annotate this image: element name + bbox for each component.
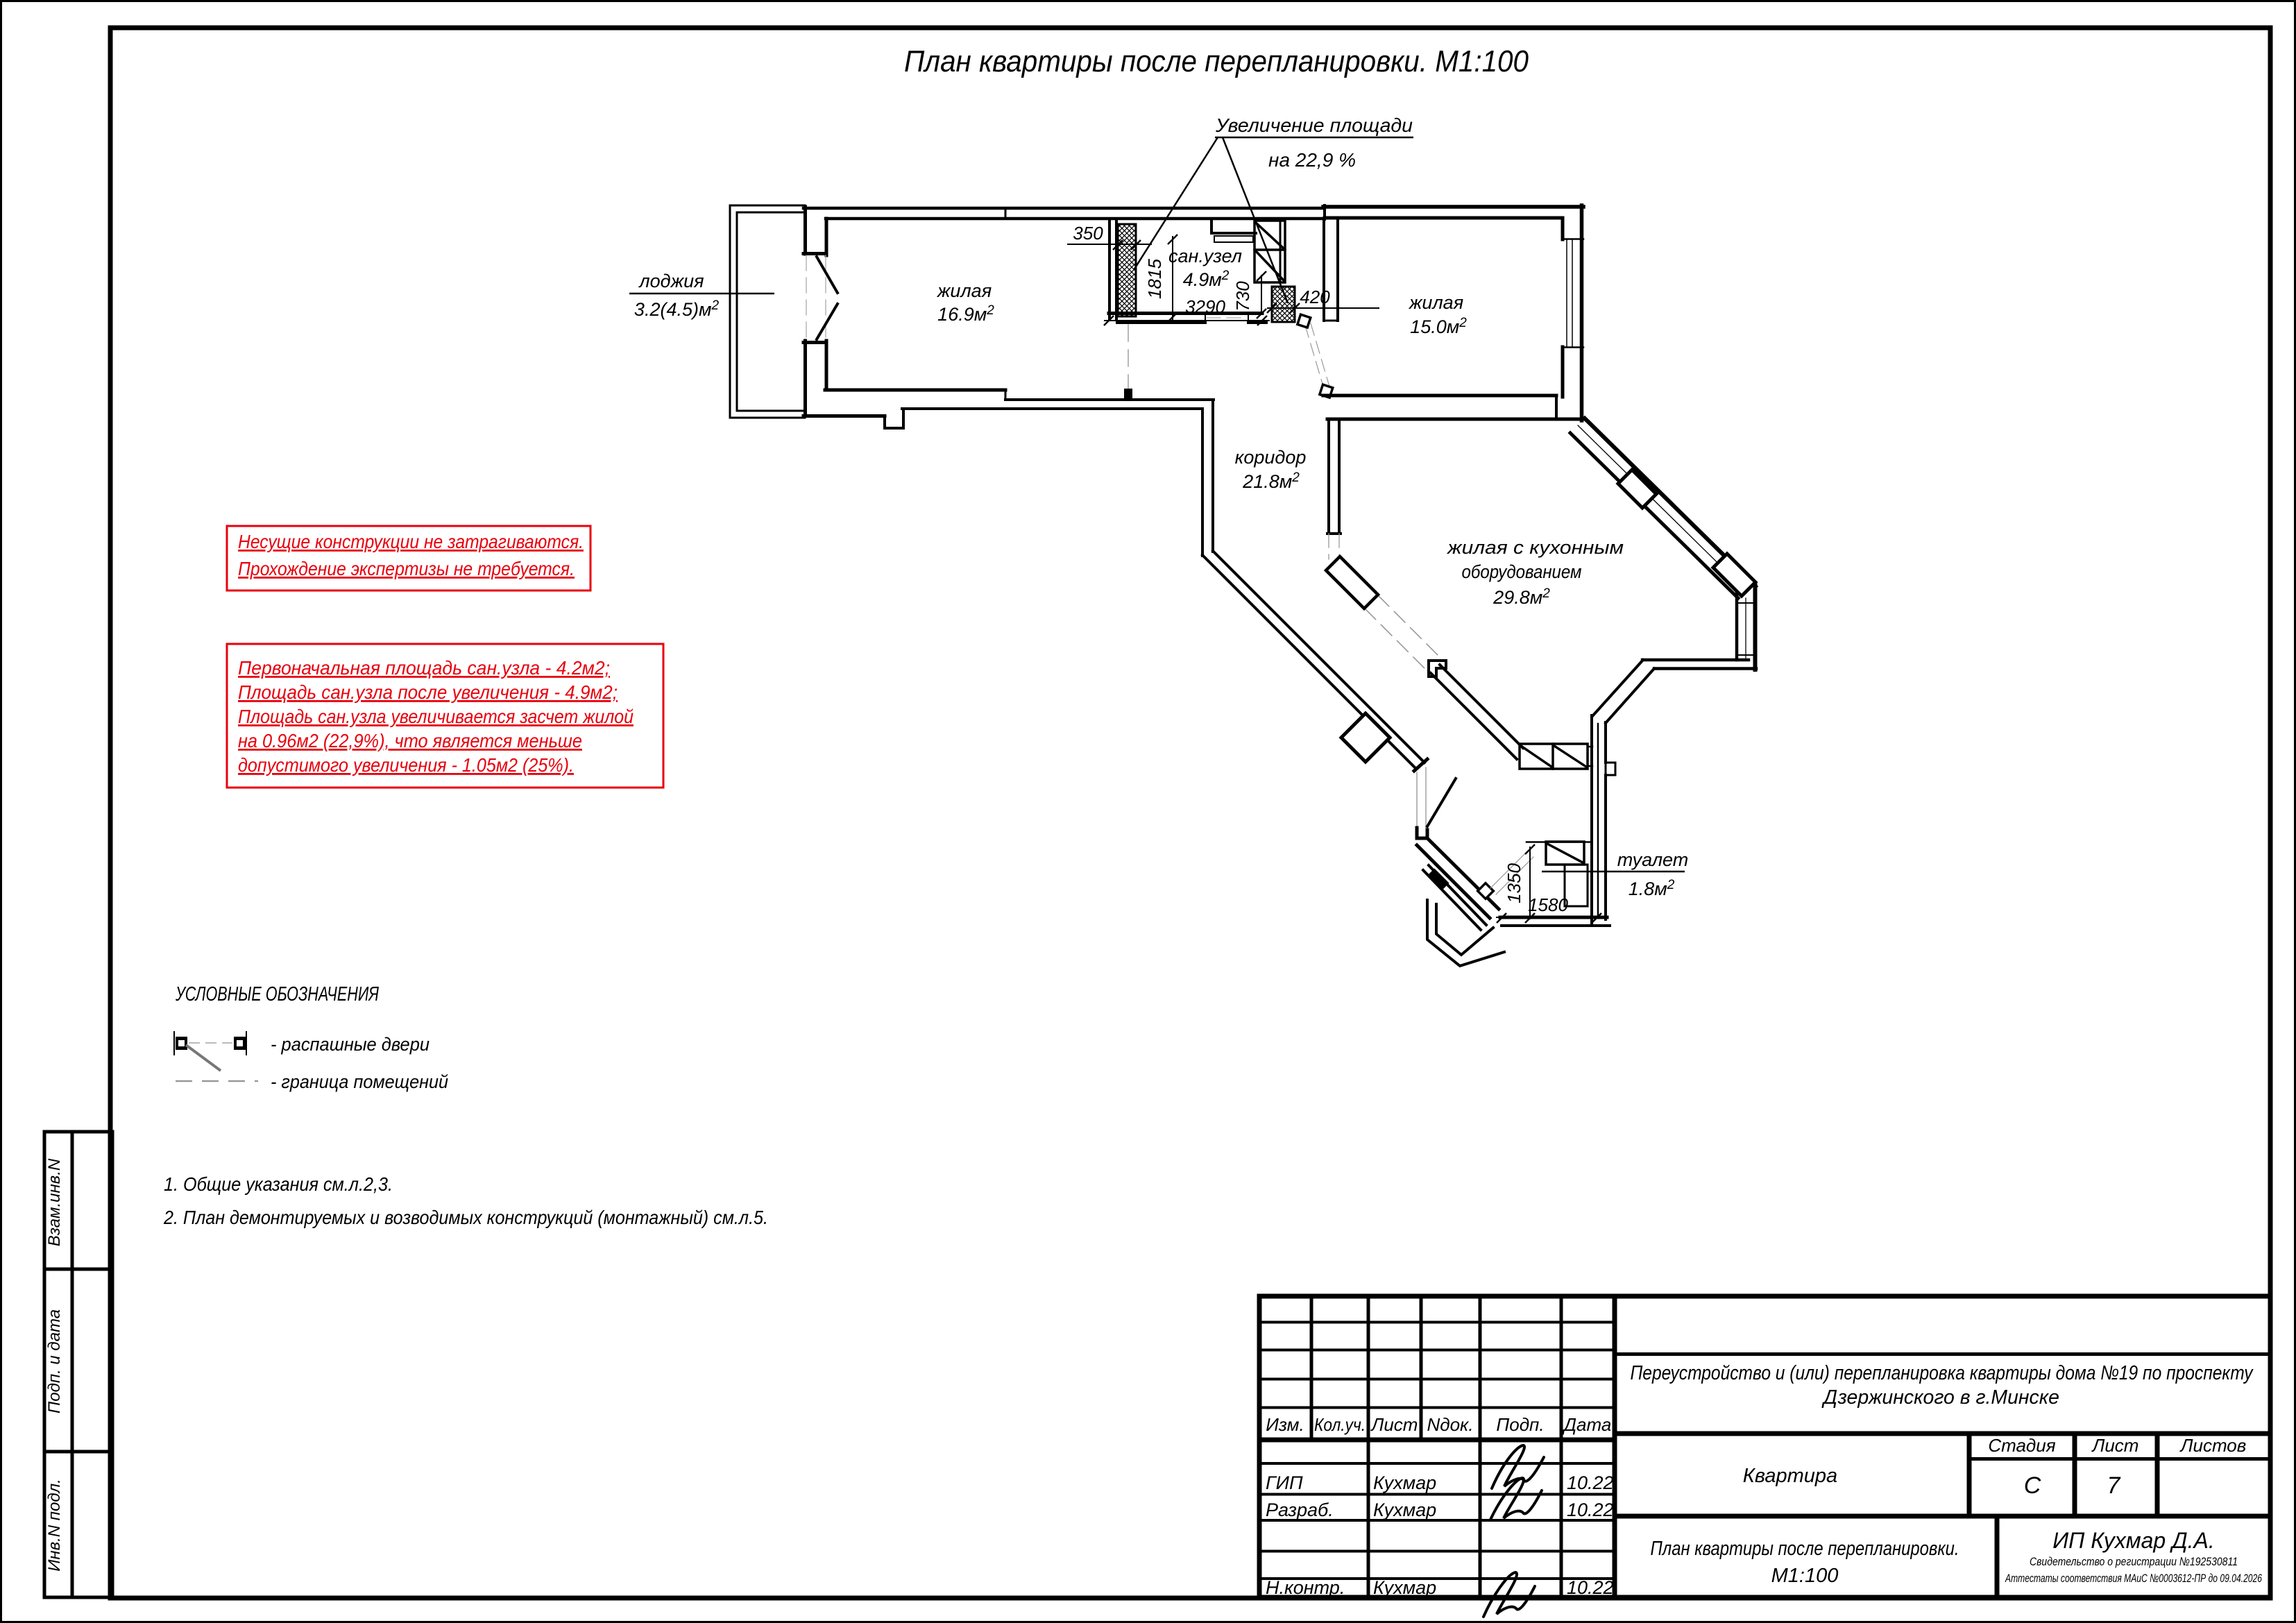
- svg-text:Лист: Лист: [1370, 1414, 1418, 1435]
- svg-text:допустимого увеличения - 1.05м: допустимого увеличения - 1.05м2 (25%).: [238, 754, 574, 776]
- svg-text:Кухмар: Кухмар: [1373, 1577, 1436, 1598]
- svg-text:10.22: 10.22: [1567, 1499, 1614, 1520]
- svg-text:сан.узел: сан.узел: [1168, 246, 1242, 266]
- svg-text:Подп. и дата: Подп. и дата: [45, 1309, 64, 1413]
- svg-text:Кухмар: Кухмар: [1373, 1499, 1436, 1520]
- svg-text:730: 730: [1232, 281, 1253, 312]
- svg-text:УСЛОВНЫЕ ОБОЗНАЧЕНИЯ: УСЛОВНЫЕ ОБОЗНАЧЕНИЯ: [175, 983, 379, 1005]
- svg-text:350: 350: [1073, 223, 1103, 244]
- svg-text:М1:100: М1:100: [1771, 1565, 1839, 1587]
- svg-text:жилая: жилая: [1409, 292, 1463, 313]
- svg-text:С: С: [2024, 1472, 2041, 1499]
- svg-text:туалет: туалет: [1617, 849, 1689, 870]
- svg-text:Площадь сан.узла после увеличе: Площадь сан.узла после увеличения - 4.9м…: [238, 681, 618, 703]
- svg-text:Первоначальная площадь сан.узл: Первоначальная площадь сан.узла - 4.2м2;: [238, 657, 610, 679]
- svg-text:3.2(4.5)м2: 3.2(4.5)м2: [634, 298, 720, 320]
- svg-text:420: 420: [1300, 287, 1330, 307]
- svg-text:Кухмар: Кухмар: [1373, 1472, 1436, 1493]
- svg-text:жилая: жилая: [937, 280, 992, 301]
- svg-text:Площадь сан.узла увеличивается: Площадь сан.узла увеличивается засчет жи…: [238, 706, 633, 727]
- svg-text:Изм.: Изм.: [1266, 1414, 1304, 1435]
- svg-text:- распашные двери: - распашные двери: [271, 1034, 430, 1055]
- svg-text:Дзержинского в г.Минске: Дзержинского в г.Минске: [1821, 1386, 2059, 1409]
- svg-text:Разраб.: Разраб.: [1266, 1499, 1334, 1520]
- svg-text:Увеличение площади: Увеличение площади: [1215, 114, 1413, 136]
- svg-text:15.0м2: 15.0м2: [1410, 316, 1467, 337]
- svg-text:Аттестаты соответствия МАиС №: Аттестаты соответствия МАиС №0003612-ПР …: [2005, 1572, 2262, 1585]
- svg-text:Листов: Листов: [2179, 1435, 2247, 1456]
- svg-text:1580: 1580: [1528, 894, 1568, 915]
- svg-text:3290: 3290: [1185, 296, 1225, 317]
- svg-text:1350: 1350: [1504, 863, 1524, 903]
- svg-text:коридор: коридор: [1235, 447, 1307, 468]
- svg-text:- граница помещений: - граница помещений: [271, 1071, 448, 1092]
- svg-text:Переустройство и (или) перепла: Переустройство и (или) перепланировка кв…: [1631, 1362, 2254, 1384]
- svg-text:Прохождение экспертизы не треб: Прохождение экспертизы не требуется.: [238, 558, 575, 579]
- svg-text:Свидетельство о регистрации №1: Свидетельство о регистрации №192530811: [2030, 1555, 2238, 1568]
- svg-text:План квартиры после перепланир: План квартиры после перепланировки. М1:1…: [904, 44, 1529, 78]
- svg-text:Инв.N подл.: Инв.N подл.: [45, 1479, 64, 1572]
- svg-text:оборудованием: оборудованием: [1462, 561, 1582, 582]
- svg-text:16.9м2: 16.9м2: [937, 303, 994, 325]
- svg-text:на 0.96м2 (22,9%), что являетс: на 0.96м2 (22,9%), что является меньше: [238, 730, 582, 751]
- svg-text:21.8м2: 21.8м2: [1242, 470, 1300, 492]
- svg-text:Nдок.: Nдок.: [1427, 1414, 1473, 1435]
- svg-text:29.8м2: 29.8м2: [1493, 586, 1550, 608]
- svg-text:Кол.уч.: Кол.уч.: [1314, 1414, 1366, 1435]
- svg-text:2. План демонтируемых и возво: 2. План демонтируемых и возводимых конст…: [163, 1207, 768, 1228]
- svg-text:жилая с кухонным: жилая с кухонным: [1447, 537, 1624, 558]
- svg-text:Квартира: Квартира: [1743, 1465, 1837, 1487]
- svg-text:лоджия: лоджия: [638, 271, 704, 291]
- svg-text:10.22: 10.22: [1567, 1577, 1614, 1598]
- svg-text:1. Общие указания см.л.2,3.: 1. Общие указания см.л.2,3.: [164, 1173, 393, 1195]
- svg-text:План квартиры после перепланир: План квартиры после перепланировки.: [1651, 1538, 1959, 1560]
- svg-text:Дата: Дата: [1562, 1414, 1612, 1435]
- svg-text:Лист: Лист: [2091, 1435, 2139, 1456]
- svg-text:на 22,9 %: на 22,9 %: [1268, 149, 1356, 171]
- svg-text:Н.контр.: Н.контр.: [1266, 1577, 1345, 1598]
- svg-text:1815: 1815: [1144, 259, 1165, 299]
- svg-text:ГИП: ГИП: [1266, 1472, 1303, 1493]
- svg-text:ИП Кухмар Д.А.: ИП Кухмар Д.А.: [2052, 1528, 2215, 1553]
- svg-text:Стадия: Стадия: [1988, 1435, 2055, 1456]
- svg-text:7: 7: [2107, 1472, 2121, 1499]
- svg-text:Взам.инв.N: Взам.инв.N: [45, 1158, 64, 1246]
- svg-text:Несущие конструкции не затраги: Несущие конструкции не затрагиваются.: [238, 531, 584, 552]
- svg-text:Подп.: Подп.: [1496, 1414, 1544, 1435]
- svg-text:10.22: 10.22: [1567, 1472, 1614, 1493]
